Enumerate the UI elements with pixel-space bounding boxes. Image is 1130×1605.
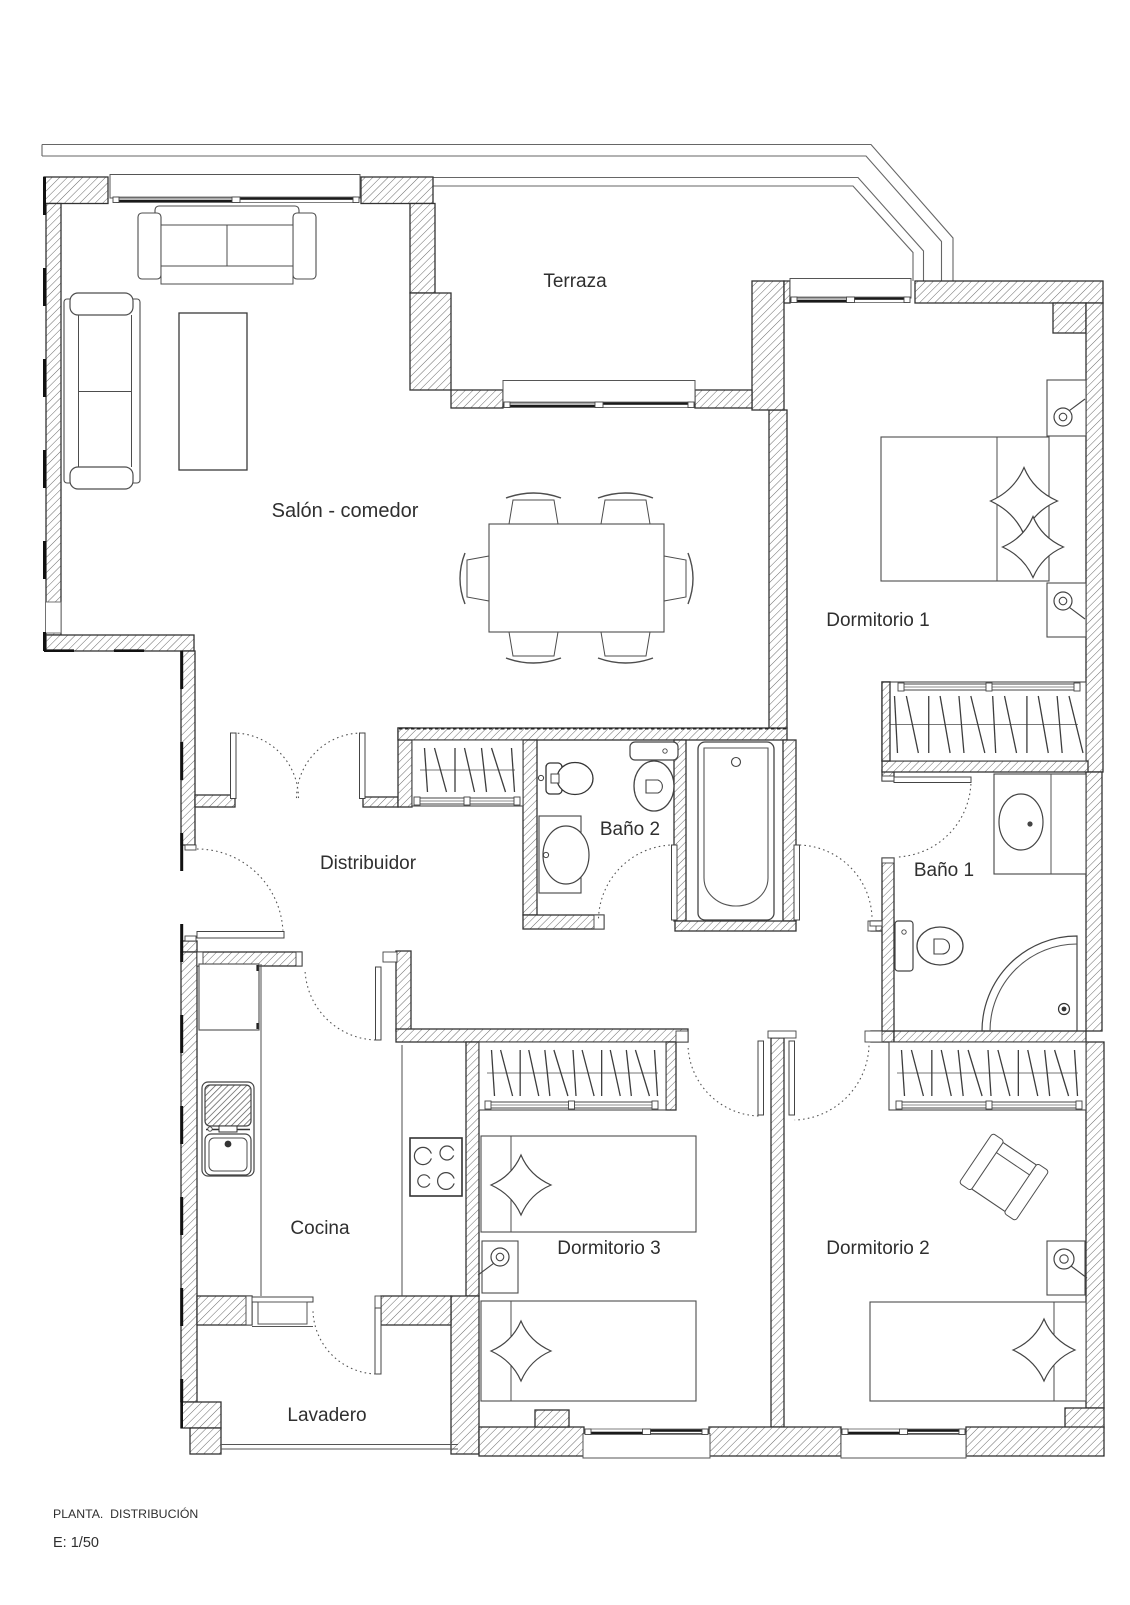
svg-text:Baño 1: Baño 1: [914, 860, 974, 881]
svg-text:Lavadero: Lavadero: [287, 1405, 366, 1426]
svg-text:Dormitorio 2: Dormitorio 2: [826, 1238, 929, 1259]
svg-text:Salón - comedor: Salón - comedor: [272, 500, 419, 522]
svg-text:E: 1/50: E: 1/50: [53, 1535, 99, 1551]
svg-text:Terraza: Terraza: [543, 271, 607, 292]
svg-text:Distribuidor: Distribuidor: [320, 853, 417, 874]
svg-text:Dormitorio 1: Dormitorio 1: [826, 610, 929, 631]
svg-text:Baño 2: Baño 2: [600, 819, 660, 840]
svg-text:Cocina: Cocina: [290, 1218, 350, 1239]
svg-text:Dormitorio 3: Dormitorio 3: [557, 1238, 660, 1259]
svg-text:PLANTA. DISTRIBUCIÓN: PLANTA. DISTRIBUCIÓN: [53, 1506, 198, 1521]
